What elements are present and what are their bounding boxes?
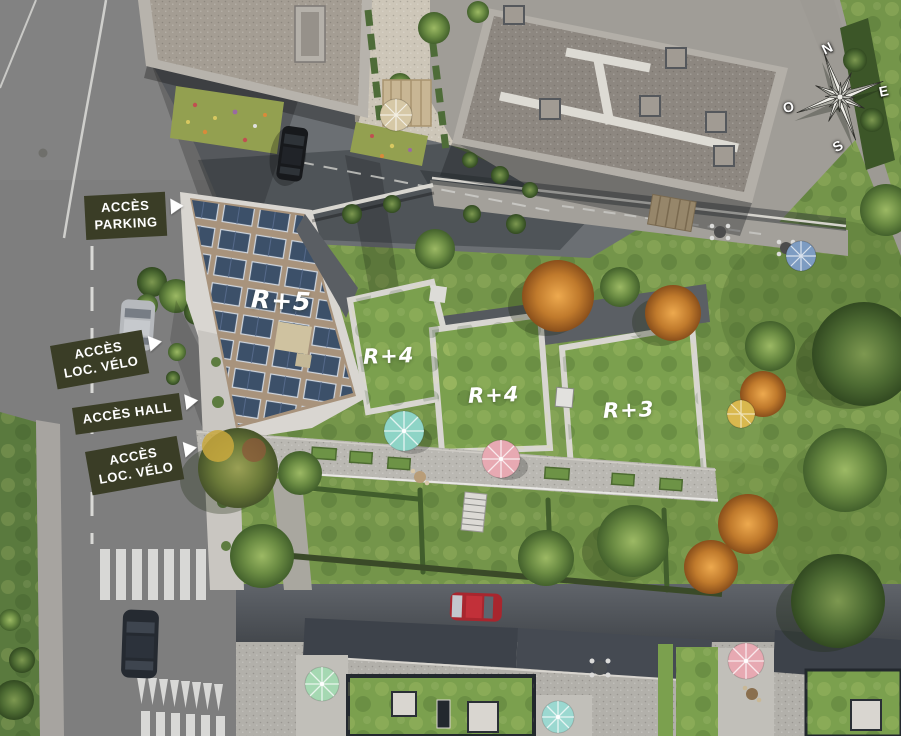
umbrella-pink-bottom bbox=[728, 643, 764, 679]
umbrella-aqua bbox=[542, 701, 574, 733]
umbrella-tan bbox=[380, 99, 412, 131]
umbrella-yellow bbox=[727, 400, 755, 428]
arrow-right-icon bbox=[184, 393, 199, 411]
car-navy bbox=[121, 609, 159, 678]
garden-stairs bbox=[461, 492, 487, 532]
arrow-right-icon bbox=[183, 439, 199, 457]
site-plan: ACCÈS PARKING ACCÈS LOC. VÉLO ACCÈS HALL… bbox=[0, 0, 901, 736]
access-parking-label: ACCÈS PARKING bbox=[84, 191, 185, 240]
building-level-label-r3: R+3 bbox=[603, 397, 655, 423]
access-label-line: PARKING bbox=[94, 214, 158, 234]
autumn-tree bbox=[522, 260, 594, 332]
umbrella-blue bbox=[786, 241, 816, 271]
arrow-right-icon bbox=[170, 198, 184, 215]
arrow-right-icon bbox=[148, 333, 164, 351]
umbrella-mint bbox=[305, 667, 339, 701]
access-parking-box: ACCÈS PARKING bbox=[84, 192, 167, 240]
building-level-label-r5: R+5 bbox=[250, 284, 312, 316]
left-verge bbox=[0, 412, 64, 736]
car-red bbox=[450, 592, 503, 622]
building-level-label-r4b: R+4 bbox=[468, 382, 520, 408]
building-level-label-r4a: R+4 bbox=[363, 343, 415, 369]
